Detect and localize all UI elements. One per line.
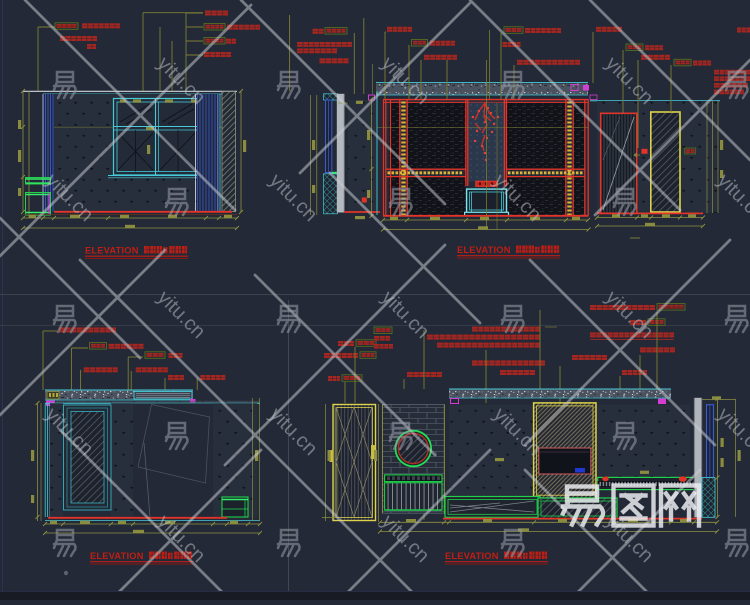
svg-text:ELEVATION: ELEVATION <box>85 246 139 256</box>
svg-text:ELEVATION: ELEVATION <box>457 245 511 255</box>
svg-text:ELEVATION: ELEVATION <box>90 551 144 561</box>
svg-text:ELEVATION: ELEVATION <box>445 551 499 561</box>
